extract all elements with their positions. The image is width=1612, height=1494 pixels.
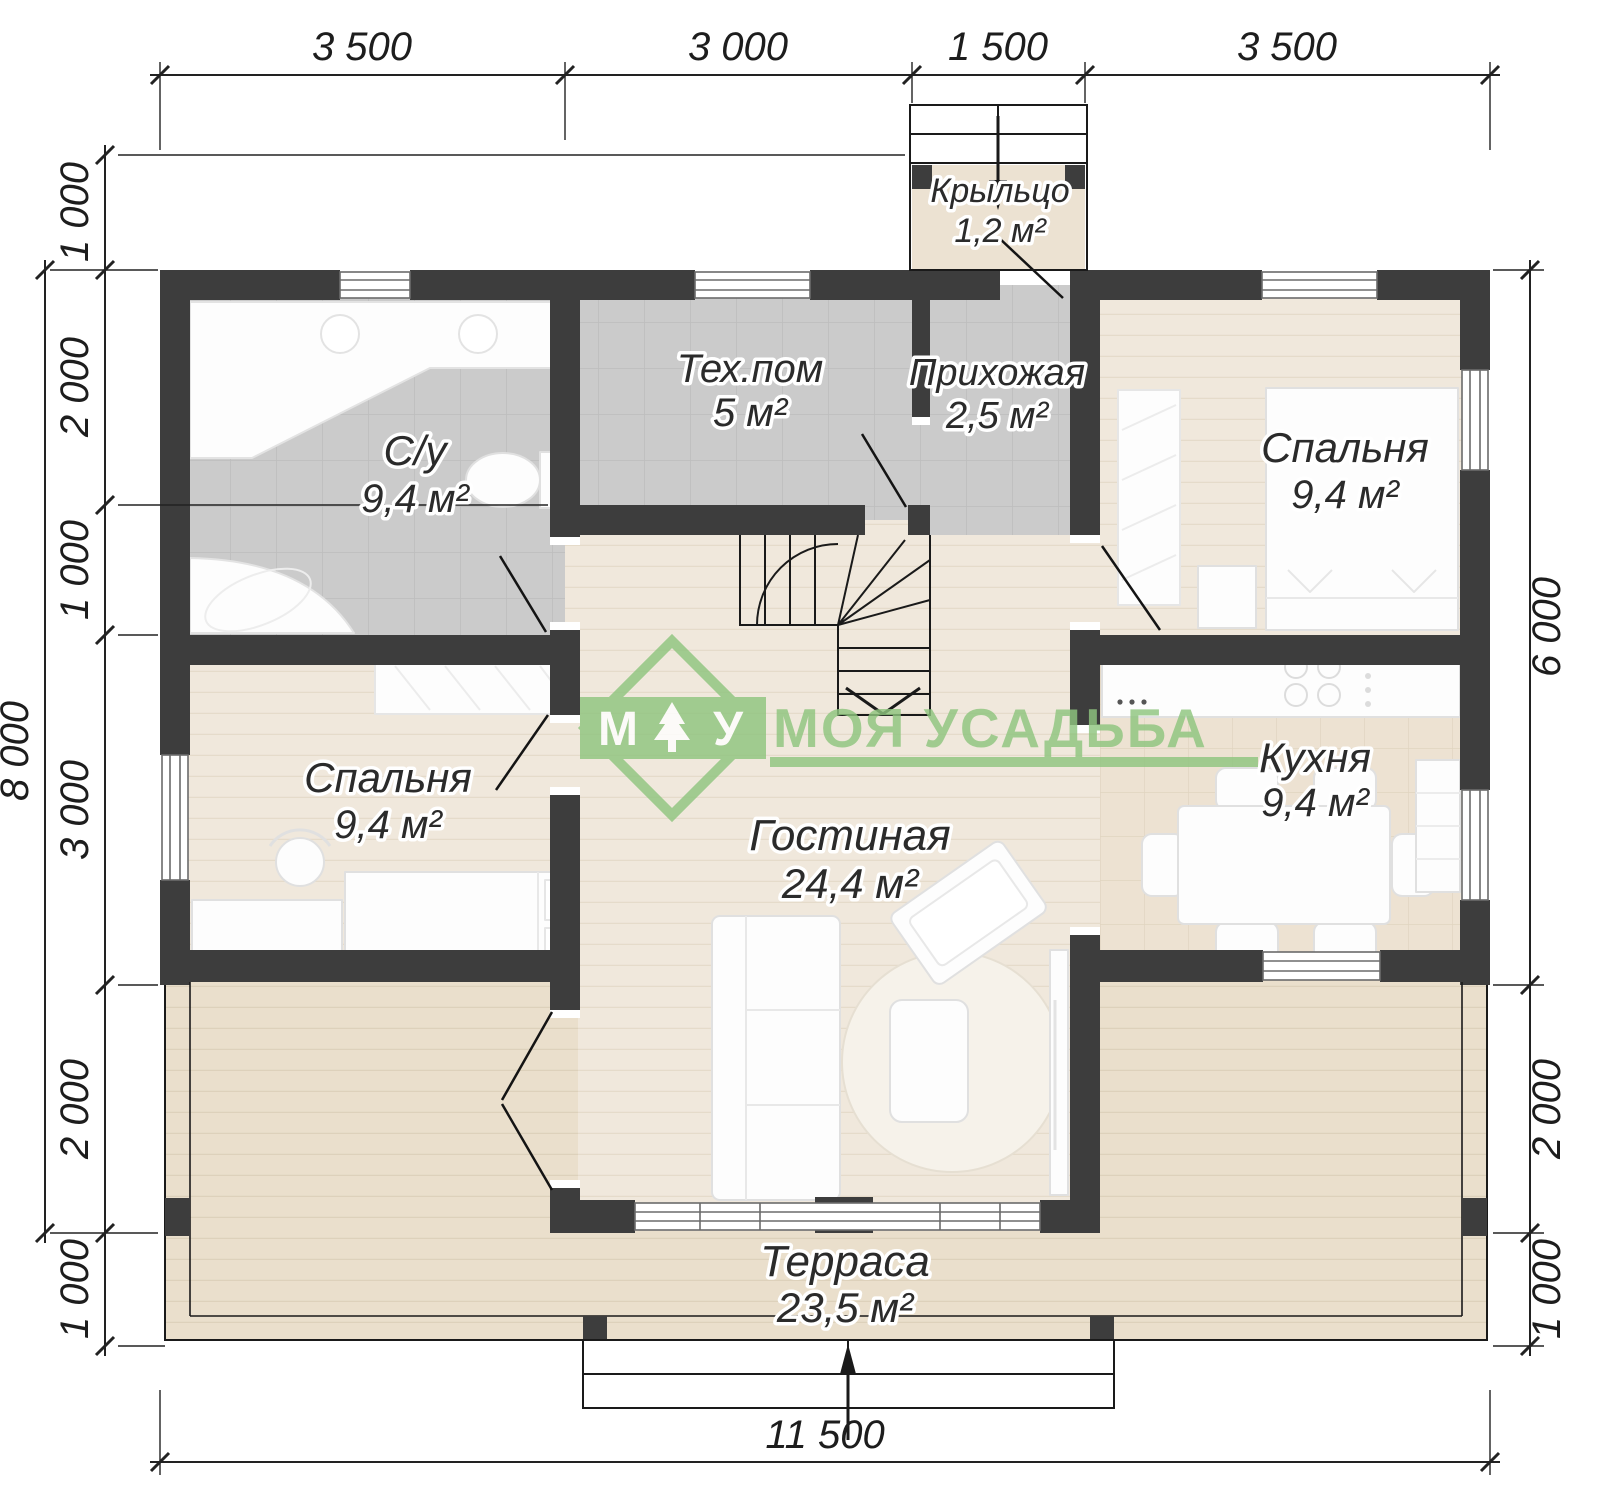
room-label-bedroom-left: Спальня — [304, 754, 472, 801]
room-label-bathroom: С/у — [384, 427, 450, 474]
kitchen-bottom-window — [1263, 952, 1380, 980]
dim-total-height: 8 000 — [0, 701, 37, 801]
room-area-tech: 5 м² — [713, 391, 789, 435]
sink-icon — [459, 315, 497, 353]
floor-plan-page: 3 500 3 000 1 500 3 500 11 500 1 000 2 0… — [0, 0, 1612, 1494]
dim-right-1: 6 000 — [1525, 577, 1569, 677]
room-label-hallway: Прихожая — [909, 352, 1085, 394]
watermark-underline — [770, 757, 1258, 767]
room-area-terrace: 23,5 м² — [776, 1284, 915, 1331]
dim-total-width: 11 500 — [765, 1413, 884, 1457]
room-label-bedroom-top: Спальня — [1261, 424, 1429, 471]
watermark-monogram-m: М — [598, 703, 638, 756]
dim-top-4: 3 500 — [1237, 25, 1337, 69]
room-label-kitchen: Кухня — [1259, 734, 1371, 781]
kitchen-side-window — [1462, 790, 1488, 900]
room-area-porch: 1,2 м² — [954, 212, 1047, 250]
bathroom-window — [340, 272, 410, 298]
room-area-bedroom-top: 9,4 м² — [1291, 473, 1400, 517]
room-label-tech: Тех.пом — [677, 347, 823, 391]
bedroom-top-side-window — [1462, 370, 1488, 470]
dim-left-3: 1 000 — [53, 520, 97, 620]
chair-icon — [276, 838, 324, 886]
sink-icon — [321, 315, 359, 353]
dim-left-6: 1 000 — [53, 1239, 97, 1339]
dim-left-1: 1 000 — [53, 162, 97, 262]
dim-top-3: 1 500 — [948, 25, 1048, 69]
bedroom-left-window — [162, 755, 188, 880]
toilet-icon — [466, 453, 540, 507]
room-label-porch: Крыльцо — [930, 172, 1069, 210]
room-area-bedroom-left: 9,4 м² — [334, 803, 443, 847]
tv-console-icon — [1050, 950, 1068, 1195]
dim-top-1: 3 500 — [312, 25, 412, 69]
dim-left-2: 2 000 — [53, 337, 97, 438]
nightstand-icon — [1198, 566, 1256, 628]
room-area-hallway: 2,5 м² — [945, 395, 1049, 437]
watermark-monogram-u: У — [713, 703, 744, 756]
room-label-terrace: Терраса — [760, 1237, 930, 1286]
dim-left-5: 2 000 — [53, 1059, 97, 1160]
dim-left-4: 3 000 — [53, 760, 97, 860]
dim-top-2: 3 000 — [688, 25, 788, 69]
sofa-icon — [712, 916, 840, 1200]
wardrobe-icon — [1118, 390, 1180, 605]
dim-right-2: 2 000 — [1525, 1059, 1569, 1160]
floor-plan-drawing: 3 500 3 000 1 500 3 500 11 500 1 000 2 0… — [0, 0, 1612, 1494]
dim-right-3: 1 000 — [1525, 1239, 1569, 1339]
room-label-living: Гостиная — [749, 811, 950, 860]
room-area-kitchen: 9,4 м² — [1261, 781, 1370, 825]
living-room-glass-wall — [635, 1203, 1040, 1230]
watermark-brand: МОЯ УСАДЬБА — [773, 697, 1208, 759]
bedroom-top-window — [1262, 272, 1377, 298]
coffee-table-icon — [890, 1000, 968, 1122]
tech-room-window — [695, 272, 810, 298]
room-area-bathroom: 9,4 м² — [361, 477, 470, 521]
room-area-living: 24,4 м² — [781, 860, 920, 907]
